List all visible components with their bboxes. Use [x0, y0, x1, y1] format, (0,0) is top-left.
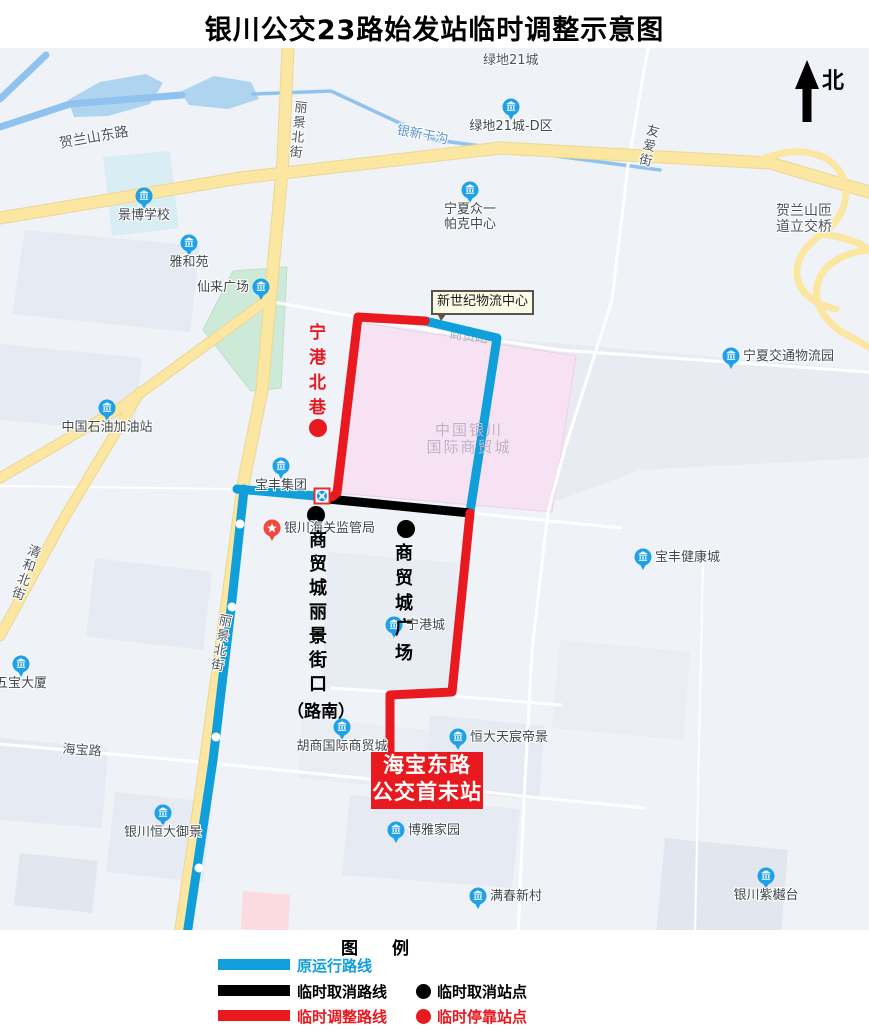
north-label: 北 — [822, 63, 844, 95]
bus-stop-marker — [212, 733, 221, 742]
cancelled-stop-dot — [307, 506, 325, 524]
legend-stop-dot — [416, 1009, 431, 1024]
map-parcel — [12, 230, 200, 332]
map-parcel — [86, 558, 212, 650]
map-parcel — [322, 552, 458, 700]
legend: 图 例 原运行路线临时取消路线临时取消站点临时调整路线临时停靠站点 — [0, 930, 869, 1030]
legend-row: 临时调整路线临时停靠站点 — [0, 1006, 869, 1026]
bus-stop-marker — [236, 520, 245, 529]
legend-line-label: 临时调整路线 — [297, 1006, 387, 1027]
terminus-line2: 公交首末站 — [371, 779, 483, 806]
page-title: 银川公交23路始发站临时调整示意图 — [0, 8, 869, 47]
map-parcel — [241, 891, 290, 932]
legend-line-label: 原运行路线 — [297, 955, 372, 976]
callout-logistics-center: 新世纪物流中心 — [431, 290, 534, 315]
legend-line-swatch — [218, 1010, 290, 1021]
legend-line-label: 临时取消路线 — [297, 981, 387, 1002]
cancelled-stop-dot — [397, 520, 415, 538]
map-parcel — [552, 640, 690, 740]
legend-stop-dot — [416, 984, 431, 999]
north-arrow-icon — [792, 57, 826, 127]
bus-stop-marker — [228, 603, 237, 612]
bus-stop-marker — [195, 864, 204, 873]
map-parcel — [656, 838, 788, 935]
legend-stop-label: 临时取消站点 — [437, 981, 527, 1002]
temporary-stop-dot — [309, 419, 327, 437]
legend-line-swatch — [218, 959, 290, 970]
route-adjustment-map: 银川公交23路始发站临时调整示意图 商贸路 贺兰山东路丽景北街银新干沟友爱街清和… — [0, 0, 869, 1030]
legend-row: 原运行路线 — [0, 955, 869, 975]
map-parcel — [14, 853, 98, 913]
terminus-line1: 海宝东路 — [371, 752, 483, 779]
legend-stop-label: 临时停靠站点 — [437, 1006, 527, 1027]
terminus-box: 海宝东路 公交首末站 — [371, 752, 483, 809]
legend-line-swatch — [218, 985, 290, 996]
legend-row: 临时取消路线临时取消站点 — [0, 981, 869, 1001]
area-shangmaocheng — [337, 322, 576, 512]
railway-crossing-icon — [315, 489, 330, 504]
callout-text: 新世纪物流中心 — [437, 294, 528, 309]
north-indicator: 北 — [786, 55, 869, 129]
